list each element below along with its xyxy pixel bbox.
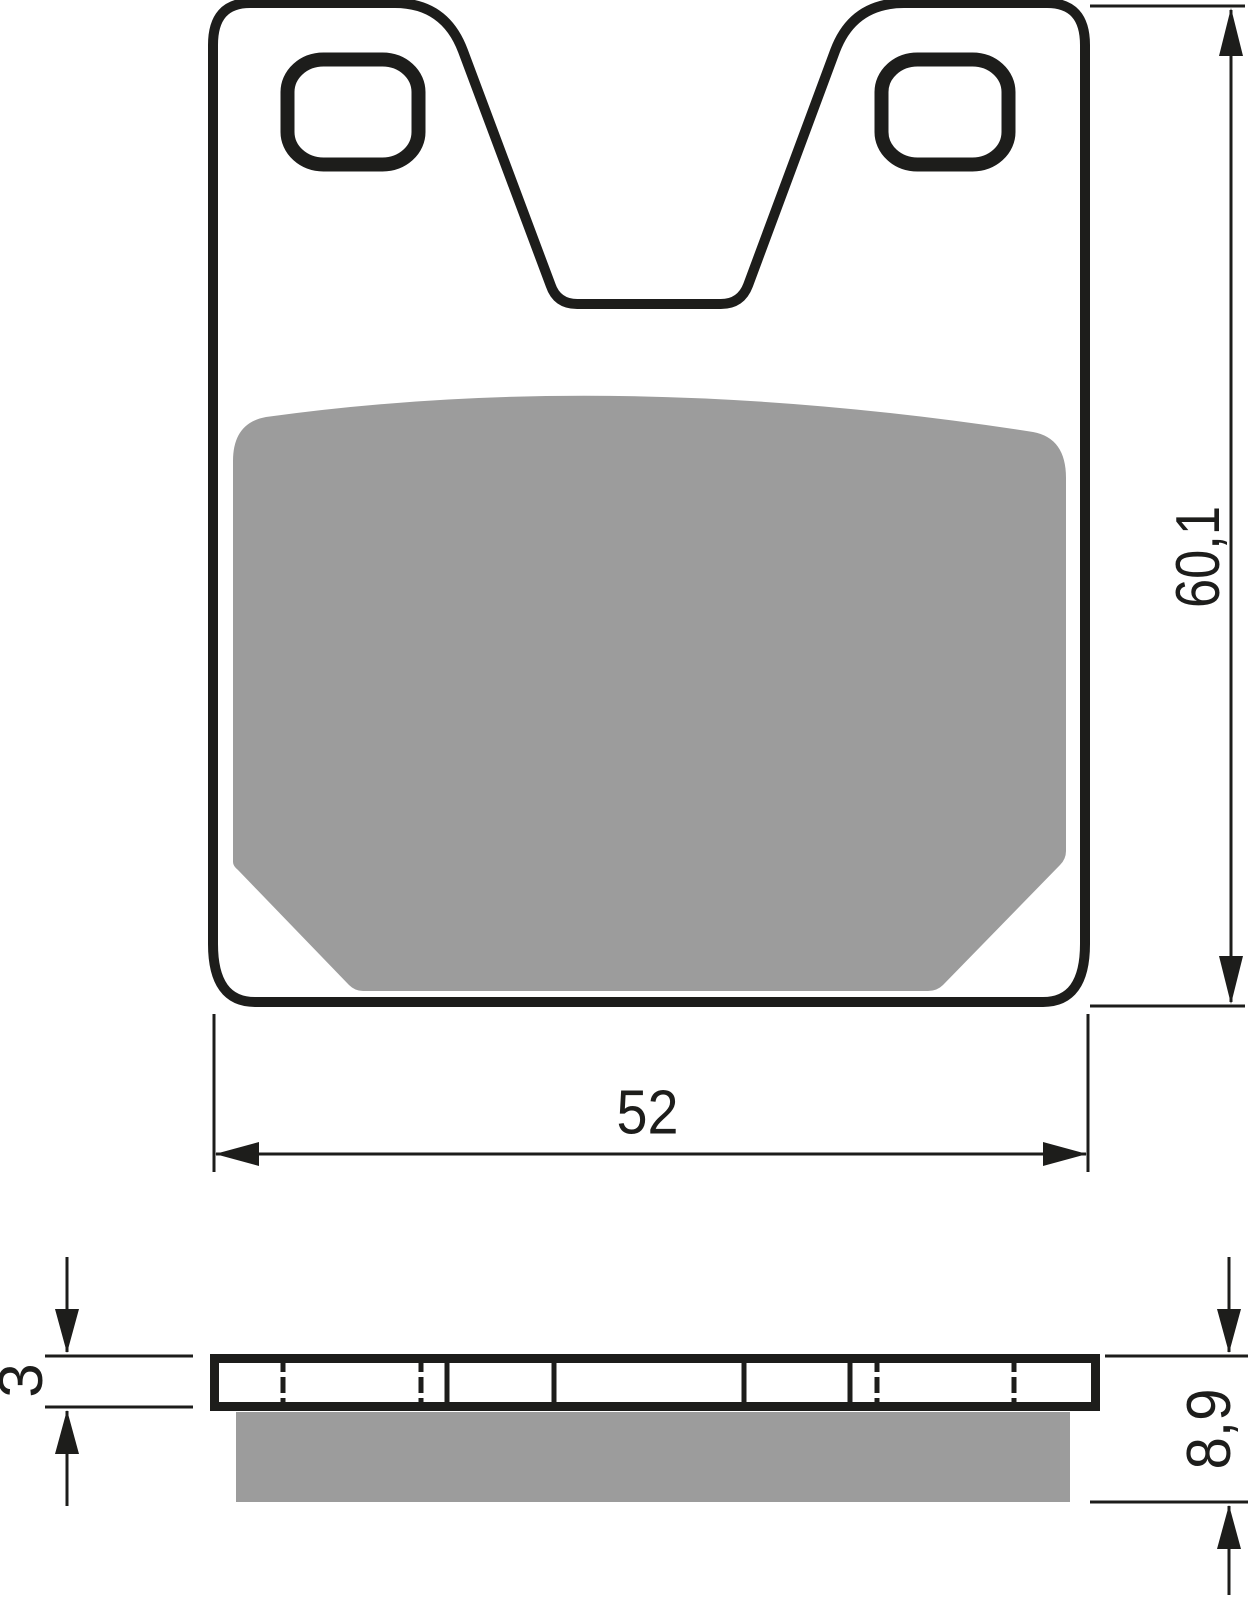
svg-text:8,9: 8,9 (1175, 1389, 1244, 1470)
svg-text:52: 52 (617, 1079, 679, 1148)
svg-text:3: 3 (0, 1363, 56, 1397)
svg-text:60,1: 60,1 (1164, 506, 1233, 608)
